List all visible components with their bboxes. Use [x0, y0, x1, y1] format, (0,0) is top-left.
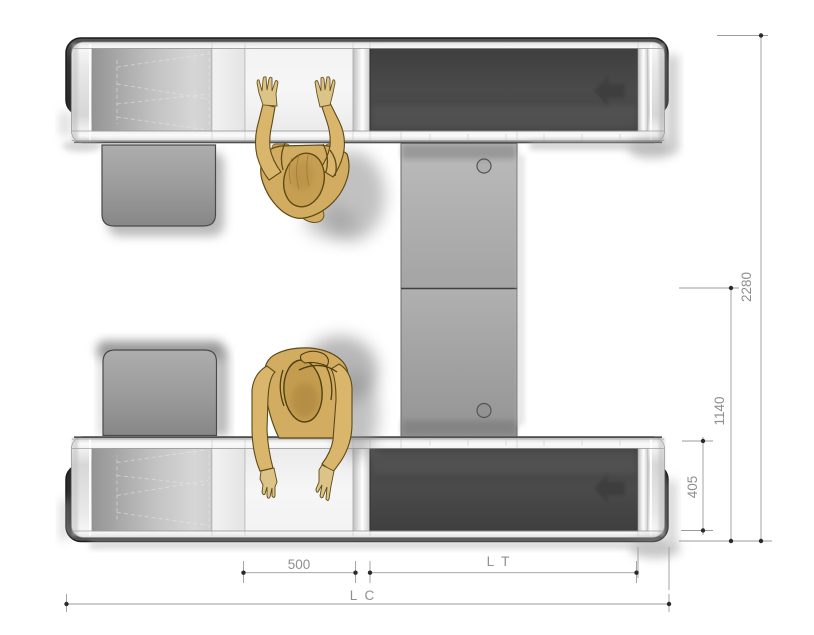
svg-text:2280: 2280: [739, 272, 754, 302]
svg-text:1140: 1140: [712, 396, 727, 425]
svg-text:L C: L C: [350, 588, 377, 603]
svg-text:405: 405: [685, 476, 700, 499]
svg-text:L T: L T: [487, 554, 512, 569]
svg-text:500: 500: [288, 557, 311, 572]
